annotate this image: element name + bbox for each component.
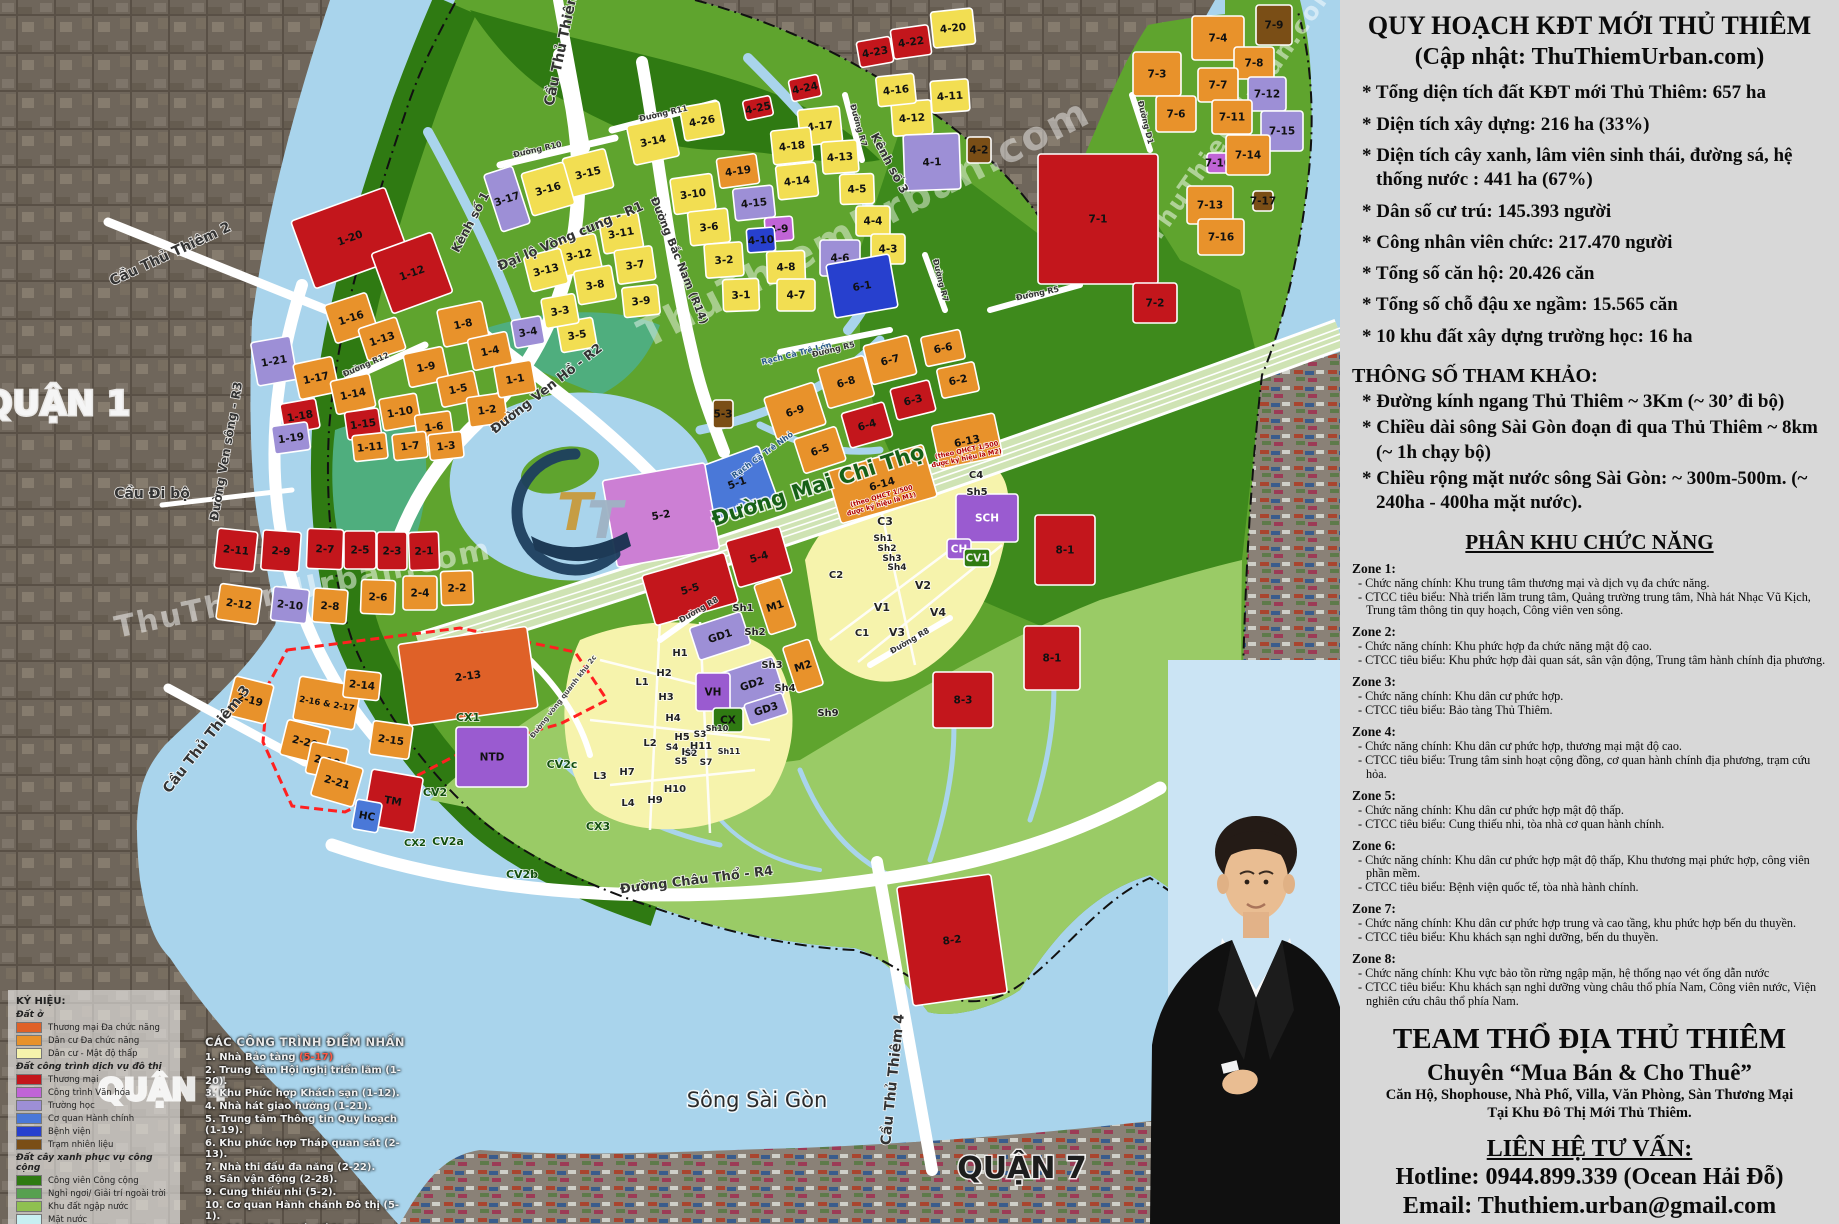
legend-swatch <box>16 1113 42 1124</box>
stat-item: * Công nhân viên chức: 217.470 người <box>1352 231 1827 255</box>
landmark-item: 5. Trung tâm Thông tin Quy hoạch (1-19). <box>205 1114 405 1136</box>
parcel-label: 4-7 <box>787 290 806 302</box>
parcel-4-11[interactable]: 4-11 <box>930 79 970 114</box>
parcel-4-20[interactable]: 4-20 <box>930 8 976 48</box>
legend-label: Bệnh viện <box>48 1127 91 1137</box>
parcel-label: 7-8 <box>1245 58 1264 70</box>
parcel-label: 2-4 <box>411 588 430 600</box>
parcel-label: 3-1 <box>731 289 750 302</box>
parcel-2-15[interactable]: 2-15 <box>369 720 413 759</box>
map-label: V3 <box>889 626 905 639</box>
stat-item: * Dân số cư trú: 145.393 người <box>1352 200 1827 224</box>
parcel-4-13[interactable]: 4-13 <box>821 140 859 174</box>
parcel-label: 1-7 <box>400 440 420 454</box>
parcel-label: NTD <box>480 752 505 764</box>
legend-label: Dân cư Đa chức năng <box>48 1036 139 1046</box>
parcel-label: 7-11 <box>1219 112 1245 124</box>
parcel-label: 3-9 <box>631 295 651 309</box>
parcel-VH[interactable]: VH <box>696 673 730 711</box>
map-label: Sh4 <box>887 563 906 573</box>
parcel-label: 4-5 <box>847 183 866 196</box>
map-label: V1 <box>874 601 890 614</box>
map-label: C3 <box>877 515 893 528</box>
parcel-6-1[interactable]: 6-1 <box>826 254 898 318</box>
parcel-7-17[interactable]: 7-17 <box>1250 191 1276 211</box>
legend-swatch <box>16 1035 42 1046</box>
map-label: H2 <box>656 668 671 679</box>
legend-swatch <box>16 1074 42 1085</box>
parcel-CV1[interactable]: CV1 <box>964 549 990 567</box>
parcel-4-23[interactable]: 4-23 <box>856 36 894 68</box>
map-label: C4 <box>969 470 983 481</box>
parcel-label: 4-4 <box>864 216 883 228</box>
legend-label: Công trình Văn hóa <box>48 1088 130 1098</box>
parcel-3-3[interactable]: 3-3 <box>541 293 580 328</box>
parcel-label: 2-3 <box>383 546 402 558</box>
map[interactable]: ThuThiemUrban.comThuThiemUrban.comThuThi… <box>0 0 1340 1224</box>
map-label: CX2 <box>404 838 426 849</box>
stat-item: * 10 khu đất xây dựng trường học: 16 ha <box>1352 325 1827 349</box>
parcel-8-1[interactable]: 8-1 <box>1024 626 1080 690</box>
parcel-4-18[interactable]: 4-18 <box>770 127 813 165</box>
parcel-4-15[interactable]: 4-15 <box>732 185 775 221</box>
parcel-label: 4-13 <box>827 151 854 165</box>
map-label: V2 <box>915 579 931 592</box>
parcel-2-3[interactable]: 2-3 <box>377 532 407 570</box>
map-label: CV2a <box>432 835 464 848</box>
map-label: Cầu Đi bộ <box>114 485 190 502</box>
parcel-5-3[interactable]: 5-3 <box>713 400 733 428</box>
parcel-4-4[interactable]: 4-4 <box>856 206 890 236</box>
landmark-item: 2. Trung tâm Hội nghị triển lãm (1-20). <box>205 1065 405 1087</box>
parcel-2-7[interactable]: 2-7 <box>306 528 343 569</box>
legend-swatch <box>16 1201 42 1212</box>
parcel-label: 4-12 <box>899 112 926 126</box>
parcel-7-1[interactable]: 7-1 <box>1038 154 1158 284</box>
parcel-8-1[interactable]: 8-1 <box>1035 515 1095 585</box>
zone-detail: - Chức năng chính: Khu dân cư phức hợp m… <box>1352 804 1827 818</box>
parcel-3-6[interactable]: 3-6 <box>687 208 730 246</box>
zone-detail: - CTCC tiêu biểu: Bảo tàng Thủ Thiêm. <box>1352 704 1827 718</box>
parcel-7-2[interactable]: 7-2 <box>1133 283 1177 323</box>
reference-list: * Đường kính ngang Thủ Thiêm ~ 3Km (~ 30… <box>1352 390 1827 516</box>
parcel-2-11[interactable]: 2-11 <box>214 528 258 572</box>
legend-swatch <box>16 1126 42 1137</box>
zone-name: Zone 1: <box>1352 561 1827 577</box>
legend-swatch <box>16 1048 42 1059</box>
panel-title: QUY HOẠCH KĐT MỚI THỦ THIÊM <box>1352 10 1827 43</box>
map-label: V4 <box>930 606 947 619</box>
parcel-7-3[interactable]: 7-3 <box>1133 52 1181 96</box>
map-label: Sh9 <box>817 708 838 719</box>
parcel-label: 4-1 <box>922 156 941 169</box>
zone-name: Zone 6: <box>1352 838 1827 854</box>
parcel-label: 4-11 <box>937 90 964 104</box>
parcel-4-2[interactable]: 4-2 <box>967 137 991 163</box>
parcel-4-10[interactable]: 4-10 <box>746 227 776 253</box>
parcel-3-8[interactable]: 3-8 <box>573 265 616 305</box>
parcel-label: 2-1 <box>414 545 433 558</box>
legend-label: Khu đất ngập nước <box>48 1202 128 1212</box>
parcel-label: 7-15 <box>1269 126 1295 138</box>
parcel-1-19[interactable]: 1-19 <box>271 422 311 455</box>
parcel-2-2[interactable]: 2-2 <box>440 570 473 605</box>
map-label: H3 <box>658 692 673 703</box>
legend-item: Khu đất ngập nước <box>16 1201 174 1212</box>
landmark-item: 8. Sân vận động (2-28). <box>205 1174 405 1185</box>
parcel-7-11[interactable]: 7-11 <box>1212 100 1252 134</box>
reference-title: THÔNG SỐ THAM KHẢO: <box>1352 365 1827 388</box>
map-label: CX1 <box>456 711 480 724</box>
legend-item: Trường học <box>16 1100 174 1111</box>
parcel-7-6[interactable]: 7-6 <box>1156 96 1196 132</box>
parcel-2-9[interactable]: 2-9 <box>261 530 302 573</box>
landmark-list: CÁC CÔNG TRÌNH ĐIỂM NHẤN 1. Nhà Bảo tàng… <box>205 1036 405 1224</box>
parcel-7-9[interactable]: 7-9 <box>1256 5 1292 45</box>
stat-item: * Tổng số căn hộ: 20.426 căn <box>1352 262 1827 286</box>
parcel-2-5[interactable]: 2-5 <box>344 531 376 569</box>
map-label: H10 <box>664 784 686 795</box>
parcel-3-10[interactable]: 3-10 <box>670 173 717 214</box>
parcel-3-7[interactable]: 3-7 <box>614 246 656 285</box>
parcel-3-9[interactable]: 3-9 <box>622 284 661 318</box>
zone-name: Zone 4: <box>1352 724 1827 740</box>
zones-title: PHÂN KHU CHỨC NĂNG <box>1352 530 1827 555</box>
map-label: H4 <box>665 713 680 724</box>
zone-name: Zone 5: <box>1352 788 1827 804</box>
contact-hotline: Hotline: 0944.899.339 (Ocean Hải Đỗ) <box>1352 1163 1827 1192</box>
landmark-item: 3. Khu Phức hợp Khách sạn (1-12). <box>205 1088 405 1099</box>
parcel-2-1[interactable]: 2-1 <box>408 531 439 570</box>
parcel-SCH[interactable]: SCH <box>956 494 1018 542</box>
parcel-NTD[interactable]: NTD <box>456 727 528 787</box>
parcel-label: 7-2 <box>1146 298 1165 310</box>
reference-item: * Chiều rộng mặt nước sông Sài Gòn: ~ 30… <box>1352 467 1827 516</box>
parcel-2-14[interactable]: 2-14 <box>343 669 382 701</box>
map-label: H9 <box>647 795 662 806</box>
map-label: Sh1 <box>873 534 892 544</box>
team-desc-1: Căn Hộ, Shophouse, Nhà Phố, Villa, Văn P… <box>1352 1086 1827 1104</box>
parcel-label: 7-16 <box>1208 232 1234 244</box>
map-label: Sh5 <box>966 487 987 498</box>
parcel-4-7[interactable]: 4-7 <box>777 279 815 311</box>
legend-label: Thương mại Đa chức năng <box>48 1023 160 1033</box>
zone-name: Zone 2: <box>1352 624 1827 640</box>
parcel-8-3[interactable]: 8-3 <box>933 672 993 728</box>
zone-detail: - CTCC tiêu biểu: Khu khách sạn nghỉ dưỡ… <box>1352 981 1827 1009</box>
parcel-7-12[interactable]: 7-12 <box>1248 77 1286 111</box>
legend-label: Dân cư - Mật độ thấp <box>48 1049 138 1059</box>
zone-detail: - Chức năng chính: Khu dân cư phức hợp, … <box>1352 740 1827 754</box>
reference-item: * Đường kính ngang Thủ Thiêm ~ 3Km (~ 30… <box>1352 390 1827 414</box>
parcel-label: 7-7 <box>1209 80 1228 92</box>
legend-swatch <box>16 1100 42 1111</box>
legend-item: Bệnh viện <box>16 1126 174 1137</box>
legend-title: KÝ HIỆU: <box>16 996 174 1007</box>
map-label: Sh3 <box>761 660 782 671</box>
parcel-3-4[interactable]: 3-4 <box>511 316 545 349</box>
map-label: Sông Sài Gòn <box>687 1088 828 1112</box>
parcel-7-7[interactable]: 7-7 <box>1198 68 1238 102</box>
parcel-label: 7-4 <box>1209 33 1228 45</box>
parcel-label: 8-3 <box>954 695 973 707</box>
map-label: L1 <box>635 677 648 688</box>
zone-name: Zone 8: <box>1352 951 1827 967</box>
parcel-label: 7-12 <box>1254 89 1280 101</box>
legend-item: Dân cư - Mật độ thấp <box>16 1048 174 1059</box>
zone-detail: - CTCC tiêu biểu: Nhà triển lãm trung tâ… <box>1352 591 1827 619</box>
legend-group-header: Đất công trình dịch vụ đô thị <box>16 1062 174 1072</box>
zone-detail: - CTCC tiêu biểu: Khu khách sạn nghỉ dưỡ… <box>1352 931 1827 945</box>
zone-detail: - CTCC tiêu biểu: Khu phức hợp đài quan … <box>1352 654 1827 668</box>
parcel-1-3[interactable]: 1-3 <box>428 431 465 460</box>
parcel-label: 7-17 <box>1250 196 1276 208</box>
parcel-7-16[interactable]: 7-16 <box>1198 219 1244 255</box>
parcel-label: 8-1 <box>1056 545 1075 557</box>
map-label: Sh4 <box>774 683 795 694</box>
map-label: Sh2 <box>877 544 896 554</box>
map-label: H5 <box>674 732 689 743</box>
parcel-label: 2-8 <box>320 600 340 613</box>
parcel-label: 4-10 <box>748 234 775 248</box>
zone-detail: - CTCC tiêu biểu: Bệnh viện quốc tế, tòa… <box>1352 881 1827 895</box>
stats-list: * Tổng diện tích đất KĐT mới Thủ Thiêm: … <box>1352 81 1827 349</box>
parcel-HC[interactable]: HC <box>352 799 383 833</box>
legend-item: Thương mại Đa chức năng <box>16 1022 174 1033</box>
legend-label: Mặt nước <box>48 1215 87 1224</box>
map-label: Sh10 <box>706 724 729 733</box>
legend-item: Thương mại <box>16 1074 174 1085</box>
parcel-label: 7-1 <box>1089 214 1108 226</box>
legend-label: Trường học <box>48 1101 95 1111</box>
parcel-4-22[interactable]: 4-22 <box>890 25 932 60</box>
parcel-4-1[interactable]: 4-1 <box>903 133 961 191</box>
stat-item: * Diện tích cây xanh, lâm viên sinh thái… <box>1352 144 1827 193</box>
zone-detail: - Chức năng chính: Khu dân cư phức hợp. <box>1352 690 1827 704</box>
landmark-list-title: CÁC CÔNG TRÌNH ĐIỂM NHẤN <box>205 1036 405 1049</box>
info-panel: QUY HOẠCH KĐT MỚI THỦ THIÊM (Cập nhật: T… <box>1340 0 1839 1224</box>
legend-swatch <box>16 1214 42 1224</box>
team-title: TEAM THỔ ĐỊA THỦ THIÊM <box>1352 1023 1827 1056</box>
legend-swatch <box>16 1188 42 1199</box>
legend-group-header: Đất cây xanh phục vụ công cộng <box>16 1153 174 1173</box>
zone-detail: - Chức năng chính: Khu trung tâm thương … <box>1352 577 1827 591</box>
team-tagline: Chuyên “Mua Bán & Cho Thuê” <box>1352 1060 1827 1086</box>
zone-detail: - CTCC tiêu biểu: Cung thiếu nhi, tòa nh… <box>1352 818 1827 832</box>
map-label: Sh11 <box>718 747 741 756</box>
parcel-2-8[interactable]: 2-8 <box>312 588 348 624</box>
parcel-4-14[interactable]: 4-14 <box>775 162 818 200</box>
parcel-3-1[interactable]: 3-1 <box>722 278 759 311</box>
map-label: CV2b <box>506 868 538 881</box>
parcel-label: 2-7 <box>315 543 334 556</box>
landmark-item: 7. Nhà thi đấu đa năng (2-22). <box>205 1162 405 1173</box>
parcel-label: 7-6 <box>1167 109 1186 121</box>
parcel-label: 3-2 <box>714 254 734 267</box>
zone-detail: - Chức năng chính: Khu phức hợp đa chức … <box>1352 640 1827 654</box>
contact-email: Email: Thuthiem.urban@gmail.com <box>1352 1192 1827 1221</box>
legend-swatch <box>16 1139 42 1150</box>
parcel-label: 7-14 <box>1235 150 1261 162</box>
stat-item: * Diện tích xây dựng: 216 ha (33%) <box>1352 113 1827 137</box>
parcel-7-14[interactable]: 7-14 <box>1226 135 1270 175</box>
map-label: S4 <box>666 743 679 753</box>
landmark-item: 10. Cơ quan Hành chánh Đô thị (5-1). <box>205 1200 405 1222</box>
legend-swatch <box>16 1175 42 1186</box>
legend-item: Nghỉ ngơi/ Giải trí ngoài trời <box>16 1188 174 1199</box>
svg-text:T: T <box>587 491 626 551</box>
landmark-item: 4. Nhà hát giao hưởng (1-21). <box>205 1101 405 1112</box>
parcel-1-11[interactable]: 1-11 <box>352 432 389 461</box>
parcel-label: 2-2 <box>447 582 466 595</box>
parcel-label: 7-9 <box>1265 20 1284 32</box>
parcel-2-4[interactable]: 2-4 <box>403 576 437 610</box>
legend-label: Cơ quan Hành chính <box>48 1114 134 1124</box>
map-label: L2 <box>643 738 656 749</box>
map-label: CV2 <box>423 786 447 799</box>
map-label: C2 <box>829 570 843 581</box>
parcel-label: 8-1 <box>1043 653 1062 665</box>
parcel-4-5[interactable]: 4-5 <box>839 173 874 204</box>
parcel-2-6[interactable]: 2-6 <box>360 579 395 614</box>
zone-detail: - Chức năng chính: Khu dân cư phức hợp t… <box>1352 917 1827 931</box>
legend-item: Trạm nhiên liệu <box>16 1139 174 1150</box>
map-label: H1 <box>672 648 687 659</box>
poster: ThuThiemUrban.comThuThiemUrban.comThuThi… <box>0 0 1839 1224</box>
parcel-3-14[interactable]: 3-14 <box>626 117 679 166</box>
parcel-label: 2-5 <box>351 545 370 557</box>
parcel-label: 5-3 <box>714 409 733 421</box>
zone-name: Zone 3: <box>1352 674 1827 690</box>
parcel-2-12[interactable]: 2-12 <box>216 583 263 624</box>
map-label: CX3 <box>586 820 610 833</box>
parcel-3-2[interactable]: 3-2 <box>704 242 744 279</box>
zone-detail: - CTCC tiêu biểu: Trung tâm sinh hoạt cộ… <box>1352 754 1827 782</box>
map-label: QUẬN 1 <box>0 383 130 424</box>
map-label: S7 <box>700 758 713 768</box>
parcel-1-21[interactable]: 1-21 <box>250 336 297 386</box>
landmark-item: 1. Nhà Bảo tàng (5-17) <box>205 1052 405 1063</box>
legend-label: Trạm nhiên liệu <box>48 1140 113 1150</box>
legend-group-header: Đất ở <box>16 1010 174 1020</box>
zones-list: Zone 1:- Chức năng chính: Khu trung tâm … <box>1352 561 1827 1009</box>
legend-swatch <box>16 1022 42 1033</box>
parcel-label: VH <box>705 687 722 699</box>
parcel-4-19[interactable]: 4-19 <box>716 153 760 188</box>
legend-item: Dân cư Đa chức năng <box>16 1035 174 1046</box>
legend-label: Công viên Công cộng <box>48 1176 139 1186</box>
stat-item: * Tổng số chỗ đậu xe ngầm: 15.565 căn <box>1352 293 1827 317</box>
map-svg[interactable]: ThuThiemUrban.comThuThiemUrban.comThuThi… <box>0 0 1340 1224</box>
agent-photo <box>1150 660 1340 1224</box>
legend-label: Thương mại <box>48 1075 99 1085</box>
parcel-label: CV1 <box>965 553 988 565</box>
parcel-label: 3-6 <box>699 221 719 235</box>
parcel-label: 1-3 <box>436 440 456 454</box>
reference-item: * Chiều dài sông Sài Gòn đoạn đi qua Thủ… <box>1352 416 1827 465</box>
parcel-7-8[interactable]: 7-8 <box>1234 47 1274 79</box>
legend-item: Công viên Công cộng <box>16 1175 174 1186</box>
map-label: S5 <box>675 757 688 767</box>
zone-detail: - Chức năng chính: Khu vực bảo tồn rừng … <box>1352 967 1827 981</box>
map-label: L4 <box>621 798 634 809</box>
parcel-label: 2-9 <box>271 545 291 558</box>
legend-item: Mặt nước <box>16 1214 174 1224</box>
map-label: Sh2 <box>744 627 765 638</box>
map-label: H7 <box>619 767 634 778</box>
stat-item: * Tổng diện tích đất KĐT mới Thủ Thiêm: … <box>1352 81 1827 105</box>
legend-swatch <box>16 1087 42 1098</box>
parcel-label: 4-2 <box>970 145 989 157</box>
parcel-1-7[interactable]: 1-7 <box>392 431 429 460</box>
parcel-label: 4-8 <box>776 261 795 274</box>
legend-item: Công trình Văn hóa <box>16 1087 174 1098</box>
legend-label: Nghỉ ngơi/ Giải trí ngoài trời <box>48 1189 166 1199</box>
parcel-4-16[interactable]: 4-16 <box>876 73 917 107</box>
parcel-label: SCH <box>975 513 999 525</box>
map-label: L3 <box>593 771 606 782</box>
parcel-8-2[interactable]: 8-2 <box>897 874 1008 1006</box>
map-label: CV2c <box>547 758 578 771</box>
landmark-item: 9. Cung thiếu nhi (5-2). <box>205 1187 405 1198</box>
landmark-item: 6. Khu phức hợp Tháp quan sát (2-13). <box>205 1138 405 1160</box>
map-label: C1 <box>855 628 869 639</box>
parcel-label: 7-13 <box>1197 200 1223 212</box>
map-label: S3 <box>694 730 707 740</box>
parcel-label: 2-6 <box>368 591 387 604</box>
legend-item: Cơ quan Hành chính <box>16 1113 174 1124</box>
zone-name: Zone 7: <box>1352 901 1827 917</box>
parcel-2-10[interactable]: 2-10 <box>270 586 309 624</box>
map-label: Sh1 <box>732 603 753 614</box>
map-legend: KÝ HIỆU: Đất ởThương mại Đa chức năngDân… <box>8 990 180 1224</box>
map-label: QUẬN 7 <box>957 1149 1087 1186</box>
zone-detail: - Chức năng chính: Khu dân cư phức hợp m… <box>1352 854 1827 882</box>
parcel-label: 7-3 <box>1148 69 1167 81</box>
team-desc-2: Tại Khu Đô Thị Mới Thủ Thiêm. <box>1352 1104 1827 1122</box>
contact-title: LIÊN HỆ TƯ VẤN: <box>1352 1136 1827 1163</box>
panel-subtitle: (Cập nhật: ThuThiemUrban.com) <box>1352 43 1827 72</box>
